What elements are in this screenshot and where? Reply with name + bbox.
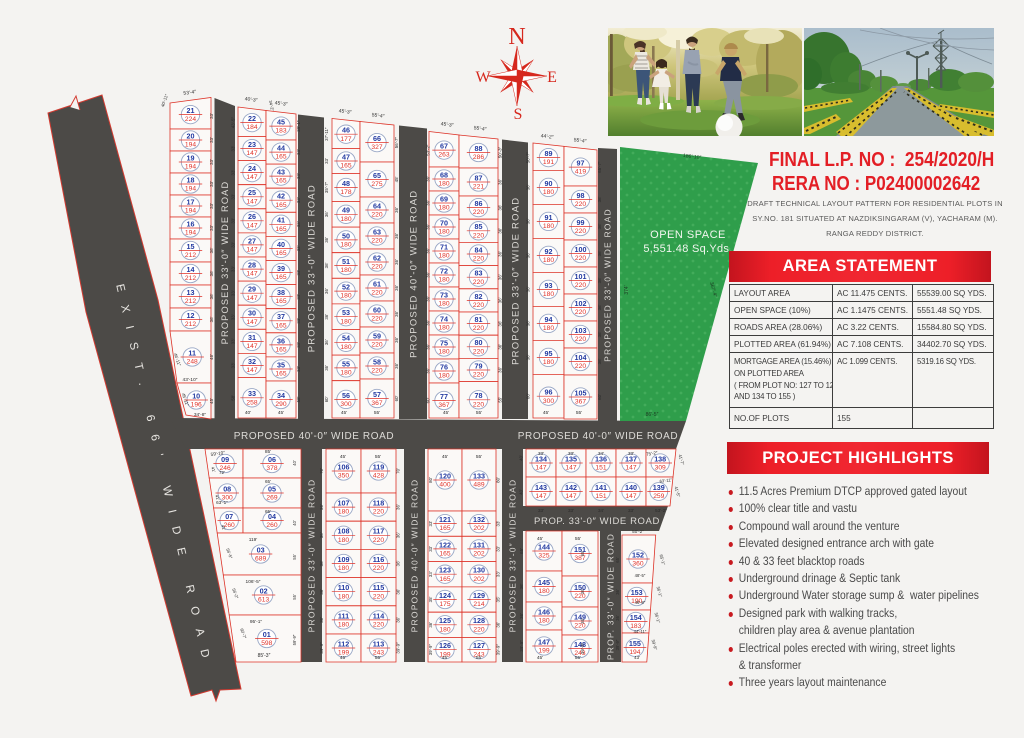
svg-text:36': 36' — [396, 589, 401, 595]
svg-text:165: 165 — [275, 154, 286, 161]
svg-text:147: 147 — [246, 150, 257, 157]
svg-text:66: 66 — [373, 134, 381, 143]
svg-text:113: 113 — [373, 639, 385, 648]
svg-text:36': 36' — [498, 251, 503, 257]
svg-text:124: 124 — [439, 591, 451, 600]
svg-text:36': 36' — [526, 184, 531, 190]
svg-text:33': 33' — [296, 294, 301, 300]
svg-text:100: 100 — [575, 245, 587, 254]
svg-text:39'-9″: 39'-9″ — [615, 639, 620, 650]
svg-text:180: 180 — [543, 325, 554, 332]
svg-text:PROPOSED 40'-0″ WIDE ROAD: PROPOSED 40'-0″ WIDE ROAD — [234, 431, 394, 442]
svg-text:44: 44 — [277, 144, 285, 153]
svg-text:180: 180 — [338, 537, 349, 544]
svg-text:36': 36' — [498, 367, 503, 373]
svg-text:220: 220 — [575, 309, 586, 316]
svg-text:39'-9″: 39'-9″ — [519, 640, 524, 652]
svg-text:194: 194 — [185, 142, 196, 149]
svg-text:248: 248 — [187, 359, 198, 366]
svg-text:33': 33' — [231, 362, 236, 368]
svg-text:147: 147 — [246, 247, 257, 254]
svg-text:367: 367 — [371, 400, 382, 407]
svg-text:220: 220 — [371, 264, 382, 271]
svg-text:36': 36' — [498, 297, 503, 303]
svg-text:613: 613 — [258, 597, 269, 604]
svg-text:39'-9″: 39'-9″ — [580, 642, 585, 654]
svg-text:36': 36' — [209, 247, 214, 253]
svg-text:33': 33' — [496, 571, 501, 577]
svg-text:165: 165 — [275, 371, 286, 378]
svg-text:367: 367 — [575, 399, 586, 406]
svg-text:99: 99 — [577, 218, 585, 227]
svg-text:101: 101 — [575, 272, 587, 281]
svg-text:93: 93 — [545, 281, 553, 290]
svg-text:133: 133 — [473, 471, 485, 480]
svg-text:37'-11″: 37'-11″ — [324, 127, 329, 141]
svg-text:212: 212 — [185, 298, 196, 305]
svg-text:18: 18 — [187, 175, 195, 184]
svg-text:22: 22 — [248, 114, 256, 123]
svg-text:199: 199 — [538, 648, 549, 655]
svg-text:03: 03 — [257, 545, 265, 554]
svg-text:165: 165 — [275, 202, 286, 209]
svg-text:60': 60' — [324, 396, 329, 402]
svg-text:PROPOSED 33'-0″ WIDE ROAD: PROPOSED 33'-0″ WIDE ROAD — [220, 181, 230, 345]
svg-text:25: 25 — [248, 188, 256, 197]
svg-text:33': 33' — [231, 338, 236, 344]
svg-text:220: 220 — [575, 228, 586, 235]
svg-text:PROPOSED 33'-0″ WIDE ROAD: PROPOSED 33'-0″ WIDE ROAD — [307, 479, 317, 633]
svg-text:53: 53 — [342, 308, 350, 317]
svg-text:263: 263 — [438, 152, 449, 159]
svg-text:33': 33' — [231, 290, 236, 296]
svg-text:165: 165 — [275, 250, 286, 257]
svg-text:88: 88 — [475, 144, 483, 153]
svg-text:12: 12 — [187, 311, 195, 320]
svg-text:84: 84 — [475, 245, 483, 254]
svg-text:95: 95 — [545, 349, 553, 358]
svg-text:196: 196 — [191, 402, 202, 409]
svg-text:180: 180 — [340, 216, 351, 223]
svg-text:194: 194 — [185, 208, 196, 215]
svg-text:139: 139 — [653, 483, 665, 492]
svg-text:89: 89 — [545, 149, 553, 158]
svg-text:50'-7″: 50'-7″ — [526, 152, 531, 164]
svg-text:220: 220 — [575, 363, 586, 370]
svg-text:36': 36' — [324, 365, 329, 371]
svg-text:38: 38 — [277, 288, 285, 297]
svg-text:41: 41 — [277, 216, 285, 225]
svg-text:325: 325 — [538, 553, 549, 560]
svg-text:69: 69 — [440, 194, 448, 203]
svg-text:212: 212 — [185, 321, 196, 328]
svg-text:220: 220 — [373, 593, 384, 600]
svg-text:269: 269 — [266, 495, 277, 502]
svg-text:39'-9″: 39'-9″ — [428, 644, 433, 656]
svg-text:220: 220 — [473, 372, 484, 379]
svg-text:220: 220 — [473, 209, 484, 216]
svg-text:33': 33' — [538, 451, 544, 456]
svg-text:147: 147 — [246, 295, 257, 302]
svg-text:98: 98 — [577, 191, 585, 200]
svg-text:33': 33' — [428, 571, 433, 577]
svg-text:36': 36' — [498, 179, 503, 185]
svg-text:102: 102 — [575, 299, 587, 308]
svg-text:36': 36' — [597, 196, 602, 202]
svg-text:85'-3″: 85'-3″ — [258, 653, 271, 659]
svg-text:61: 61 — [373, 279, 381, 288]
svg-text:111: 111 — [338, 611, 349, 620]
svg-text:68: 68 — [440, 170, 448, 179]
svg-text:165: 165 — [275, 298, 286, 305]
svg-text:202: 202 — [473, 525, 484, 532]
svg-text:48: 48 — [342, 179, 350, 188]
svg-text:147: 147 — [246, 319, 257, 326]
svg-text:40': 40' — [519, 455, 524, 461]
svg-text:N: N — [508, 24, 525, 50]
svg-text:132: 132 — [473, 515, 485, 524]
svg-text:36': 36' — [396, 617, 401, 623]
svg-text:180: 180 — [338, 565, 349, 572]
svg-text:60': 60' — [426, 397, 431, 403]
svg-text:PROP. 33'-0″ WIDE ROAD: PROP. 33'-0″ WIDE ROAD — [606, 533, 616, 660]
svg-text:33': 33' — [296, 221, 301, 227]
svg-text:103: 103 — [575, 326, 587, 335]
svg-text:37: 37 — [277, 312, 285, 321]
svg-text:95'-1″: 95'-1″ — [250, 619, 263, 625]
svg-text:36': 36' — [319, 560, 324, 566]
svg-text:147: 147 — [246, 367, 257, 374]
svg-text:180: 180 — [438, 373, 449, 380]
svg-text:110: 110 — [338, 583, 350, 592]
svg-text:220: 220 — [473, 302, 484, 309]
svg-text:36': 36' — [396, 560, 401, 566]
svg-text:300: 300 — [340, 401, 351, 408]
svg-text:180: 180 — [340, 242, 351, 249]
svg-text:PROPOSED 40'-0″ WIDE ROAD: PROPOSED 40'-0″ WIDE ROAD — [410, 479, 420, 633]
svg-text:85: 85 — [475, 222, 483, 231]
svg-text:17: 17 — [187, 197, 195, 206]
svg-text:147: 147 — [535, 465, 546, 472]
svg-text:180: 180 — [543, 291, 554, 298]
svg-text:33: 33 — [248, 389, 256, 398]
svg-text:64: 64 — [373, 201, 381, 210]
svg-text:50'-2″: 50'-2″ — [632, 529, 644, 534]
svg-text:28: 28 — [248, 260, 256, 269]
svg-text:374': 374' — [624, 285, 630, 294]
svg-text:350: 350 — [338, 473, 349, 480]
svg-text:214: 214 — [473, 601, 484, 608]
svg-text:33': 33' — [209, 181, 214, 187]
svg-text:46': 46' — [209, 354, 214, 360]
svg-text:47: 47 — [342, 152, 350, 161]
svg-text:55': 55' — [575, 536, 581, 542]
svg-text:33': 33' — [628, 451, 634, 456]
svg-text:224: 224 — [185, 116, 196, 123]
svg-text:35': 35' — [428, 596, 433, 602]
svg-text:180: 180 — [438, 325, 449, 332]
svg-text:33': 33' — [231, 218, 236, 224]
svg-text:85': 85' — [265, 449, 271, 455]
svg-text:36': 36' — [396, 532, 401, 538]
svg-text:55': 55' — [476, 655, 482, 661]
svg-text:165: 165 — [275, 226, 286, 233]
svg-text:147: 147 — [625, 465, 636, 472]
svg-text:180: 180 — [538, 618, 549, 625]
svg-text:36': 36' — [526, 286, 531, 292]
svg-text:54: 54 — [342, 334, 350, 343]
svg-text:202: 202 — [473, 551, 484, 558]
svg-text:180: 180 — [338, 622, 349, 629]
svg-text:260: 260 — [266, 522, 277, 529]
svg-text:151: 151 — [595, 465, 606, 472]
svg-text:10: 10 — [192, 391, 200, 400]
svg-text:36': 36' — [319, 532, 324, 538]
svg-text:36': 36' — [597, 358, 602, 364]
svg-text:180: 180 — [543, 223, 554, 230]
svg-text:123: 123 — [439, 566, 451, 575]
svg-text:86'-5″: 86'-5″ — [646, 412, 659, 418]
svg-text:77: 77 — [440, 392, 448, 401]
svg-text:33': 33' — [496, 521, 501, 527]
svg-text:180: 180 — [538, 588, 549, 595]
svg-text:221: 221 — [473, 184, 484, 191]
svg-text:33': 33' — [296, 245, 301, 251]
svg-text:58': 58' — [296, 396, 301, 402]
svg-text:33': 33' — [296, 173, 301, 179]
svg-text:180: 180 — [543, 257, 554, 264]
svg-text:55': 55' — [375, 454, 381, 460]
svg-text:39'-9″: 39'-9″ — [496, 644, 501, 656]
svg-text:360: 360 — [632, 561, 643, 568]
svg-text:36: 36 — [277, 336, 285, 345]
svg-text:194: 194 — [185, 186, 196, 193]
svg-text:62: 62 — [373, 253, 381, 262]
svg-text:114: 114 — [373, 611, 385, 620]
svg-text:36': 36' — [526, 252, 531, 258]
svg-text:OPEN SPACE: OPEN SPACE — [650, 229, 726, 241]
svg-text:80: 80 — [475, 338, 483, 347]
svg-text:57: 57 — [373, 390, 381, 399]
svg-text:32: 32 — [248, 357, 256, 366]
svg-text:220: 220 — [473, 626, 484, 633]
svg-text:33': 33' — [231, 194, 236, 200]
svg-text:60': 60' — [526, 393, 531, 399]
svg-text:40': 40' — [245, 410, 251, 416]
svg-text:72: 72 — [440, 266, 448, 275]
svg-text:128: 128 — [473, 616, 485, 625]
svg-text:15: 15 — [187, 242, 195, 251]
svg-text:130: 130 — [473, 566, 485, 575]
svg-text:220: 220 — [473, 256, 484, 263]
svg-text:73: 73 — [440, 290, 448, 299]
svg-text:91: 91 — [545, 213, 553, 222]
svg-text:36': 36' — [426, 224, 431, 230]
svg-text:36': 36' — [426, 320, 431, 326]
svg-text:75: 75 — [440, 338, 448, 347]
svg-text:119: 119 — [373, 462, 385, 471]
svg-text:07: 07 — [225, 512, 233, 521]
svg-text:147: 147 — [246, 174, 257, 181]
svg-text:81: 81 — [475, 315, 483, 324]
svg-text:33': 33' — [296, 197, 301, 203]
svg-text:36': 36' — [498, 321, 503, 327]
svg-text:33': 33' — [231, 314, 236, 320]
svg-text:180: 180 — [438, 229, 449, 236]
svg-text:131: 131 — [473, 540, 485, 549]
svg-text:180: 180 — [340, 267, 351, 274]
svg-text:180: 180 — [438, 253, 449, 260]
svg-text:180: 180 — [438, 181, 449, 188]
svg-text:36': 36' — [615, 589, 620, 595]
svg-text:65'-7″: 65'-7″ — [597, 161, 602, 173]
svg-text:19: 19 — [187, 153, 195, 162]
svg-text:55': 55' — [498, 397, 503, 403]
svg-text:60: 60 — [373, 305, 381, 314]
svg-text:78: 78 — [475, 391, 483, 400]
svg-text:165: 165 — [439, 525, 450, 532]
svg-text:36': 36' — [498, 274, 503, 280]
svg-text:36': 36' — [498, 205, 503, 211]
svg-text:35: 35 — [277, 360, 285, 369]
svg-text:W: W — [475, 69, 491, 86]
svg-text:65': 65' — [265, 479, 271, 484]
svg-text:147: 147 — [565, 493, 576, 500]
svg-text:53'-2″: 53'-2″ — [426, 144, 431, 156]
svg-text:43'-10″: 43'-10″ — [183, 377, 198, 383]
svg-text:63: 63 — [373, 227, 381, 236]
svg-text:180: 180 — [438, 277, 449, 284]
svg-text:180: 180 — [340, 318, 351, 325]
svg-text:36': 36' — [580, 588, 585, 594]
svg-text:97: 97 — [577, 159, 585, 168]
svg-text:45': 45' — [209, 398, 214, 404]
svg-text:220: 220 — [575, 201, 586, 208]
svg-text:70': 70' — [396, 468, 401, 474]
svg-text:45': 45' — [442, 454, 448, 460]
svg-text:36': 36' — [324, 314, 329, 320]
svg-text:33': 33' — [296, 149, 301, 155]
svg-text:220: 220 — [371, 342, 382, 349]
svg-text:33': 33' — [428, 521, 433, 527]
svg-text:36': 36' — [519, 583, 524, 589]
svg-text:180: 180 — [340, 344, 351, 351]
svg-text:PROPOSED 33'-0″ WIDE ROAD: PROPOSED 33'-0″ WIDE ROAD — [306, 184, 317, 352]
svg-text:106: 106 — [338, 462, 350, 471]
svg-text:45': 45' — [341, 410, 347, 416]
svg-text:36': 36' — [426, 200, 431, 206]
svg-text:117: 117 — [373, 527, 385, 536]
svg-text:147: 147 — [246, 271, 257, 278]
svg-text:36': 36' — [394, 337, 399, 343]
svg-text:107: 107 — [338, 499, 350, 508]
svg-text:05: 05 — [268, 484, 276, 493]
svg-text:36': 36' — [324, 211, 329, 217]
svg-text:46'-8″: 46'-8″ — [635, 600, 646, 605]
svg-text:83: 83 — [475, 269, 483, 278]
svg-text:56: 56 — [342, 391, 350, 400]
svg-text:86: 86 — [475, 199, 483, 208]
svg-text:43': 43' — [634, 655, 640, 660]
svg-text:194: 194 — [185, 230, 196, 237]
svg-text:191: 191 — [543, 159, 554, 166]
svg-text:36': 36' — [319, 617, 324, 623]
svg-text:220: 220 — [575, 336, 586, 343]
svg-text:33': 33' — [231, 146, 236, 152]
svg-text:42: 42 — [277, 192, 285, 201]
svg-text:220: 220 — [473, 279, 484, 286]
svg-text:259: 259 — [653, 493, 664, 500]
svg-text:PROPOSED 33'-0″ WIDE ROAD: PROPOSED 33'-0″ WIDE ROAD — [508, 479, 518, 633]
svg-text:39'-9″: 39'-9″ — [396, 642, 401, 654]
svg-text:400: 400 — [439, 482, 450, 489]
svg-text:147: 147 — [538, 637, 550, 646]
svg-text:45': 45' — [543, 410, 549, 416]
svg-text:689: 689 — [255, 556, 266, 563]
svg-text:52: 52 — [342, 283, 350, 292]
svg-text:49: 49 — [342, 206, 350, 215]
svg-text:50'-3″: 50'-3″ — [498, 146, 503, 158]
svg-text:39: 39 — [277, 264, 285, 273]
svg-text:PROPOSED 40'-0″ WIDE ROAD: PROPOSED 40'-0″ WIDE ROAD — [408, 190, 419, 358]
svg-text:43'-5″: 43'-5″ — [231, 117, 236, 129]
svg-text:367: 367 — [438, 402, 449, 409]
svg-text:290: 290 — [275, 401, 286, 408]
svg-text:36': 36' — [526, 320, 531, 326]
svg-text:45': 45' — [442, 655, 448, 661]
svg-text:180: 180 — [439, 626, 450, 633]
svg-text:220: 220 — [371, 316, 382, 323]
svg-text:53'-2″: 53'-2″ — [655, 508, 667, 513]
svg-text:09: 09 — [221, 455, 229, 464]
svg-text:5,551.48 Sq.Yds.: 5,551.48 Sq.Yds. — [643, 243, 732, 255]
svg-text:177: 177 — [340, 136, 351, 143]
svg-text:165: 165 — [275, 274, 286, 281]
svg-text:79: 79 — [475, 361, 483, 370]
svg-text:36': 36' — [597, 223, 602, 229]
svg-text:36': 36' — [597, 277, 602, 283]
svg-text:01: 01 — [263, 630, 271, 639]
svg-text:36': 36' — [426, 368, 431, 374]
svg-text:55': 55' — [576, 410, 582, 416]
svg-text:08: 08 — [223, 484, 231, 493]
svg-text:70: 70 — [440, 218, 448, 227]
svg-text:154: 154 — [630, 613, 642, 622]
svg-text:140: 140 — [625, 483, 637, 492]
svg-text:29: 29 — [248, 285, 256, 294]
svg-text:36': 36' — [396, 504, 401, 510]
svg-text:51: 51 — [342, 257, 350, 266]
svg-text:212: 212 — [185, 275, 196, 282]
svg-text:40': 40' — [519, 489, 524, 495]
svg-text:55': 55' — [476, 454, 482, 460]
svg-text:151: 151 — [595, 493, 606, 500]
svg-text:23: 23 — [248, 140, 256, 149]
svg-text:36': 36' — [597, 304, 602, 310]
svg-text:180: 180 — [438, 301, 449, 308]
svg-text:36': 36' — [319, 504, 324, 510]
svg-text:258: 258 — [246, 399, 257, 406]
svg-text:74: 74 — [440, 314, 448, 323]
svg-text:125: 125 — [439, 616, 451, 625]
svg-text:70': 70' — [319, 468, 324, 474]
svg-text:180: 180 — [438, 349, 449, 356]
svg-text:33': 33' — [324, 158, 329, 164]
svg-text:183: 183 — [275, 128, 286, 135]
svg-text:115: 115 — [373, 583, 385, 592]
svg-text:152: 152 — [632, 550, 644, 559]
svg-text:24: 24 — [248, 164, 256, 173]
